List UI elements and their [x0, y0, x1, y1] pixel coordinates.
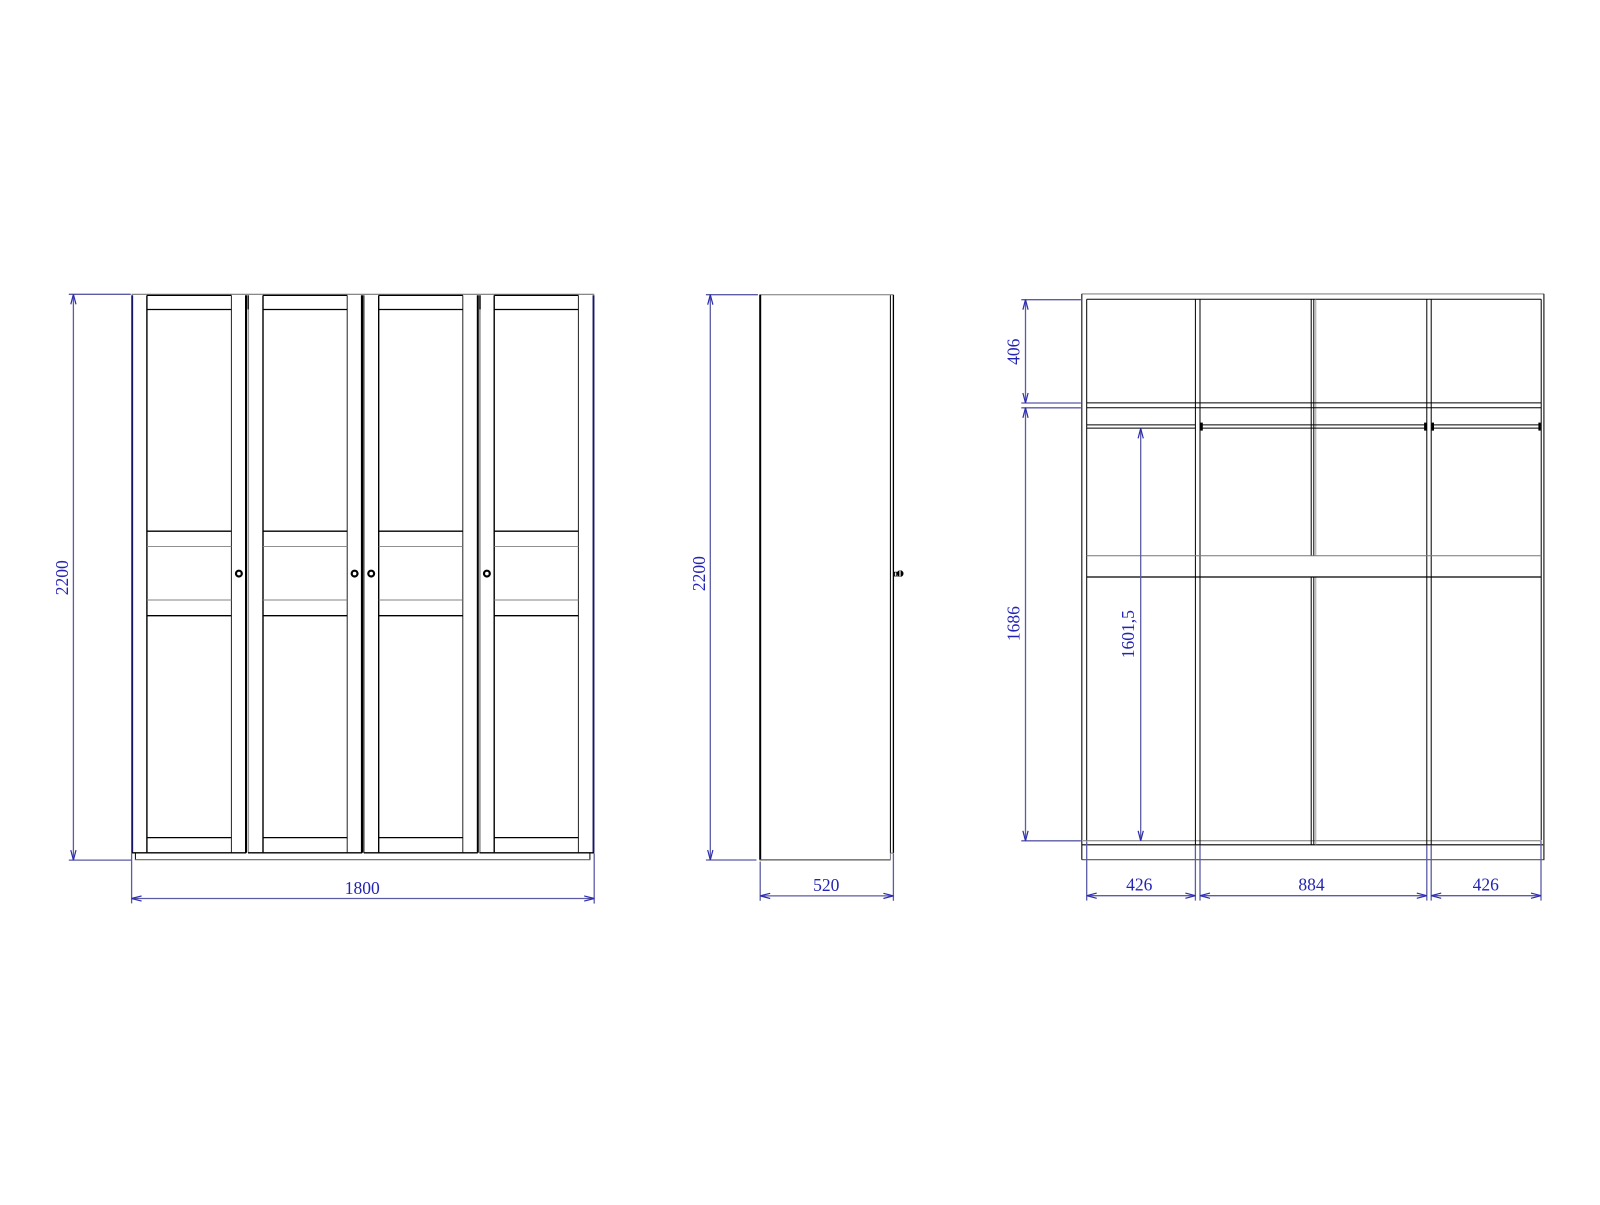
svg-text:2200: 2200 — [689, 556, 709, 591]
svg-text:406: 406 — [1003, 338, 1023, 365]
svg-text:426: 426 — [1473, 875, 1500, 895]
svg-text:884: 884 — [1298, 875, 1325, 895]
svg-text:1800: 1800 — [345, 878, 380, 898]
svg-text:520: 520 — [813, 875, 840, 895]
svg-text:426: 426 — [1126, 875, 1153, 895]
svg-text:2200: 2200 — [52, 560, 72, 595]
svg-text:1601,5: 1601,5 — [1118, 610, 1138, 658]
svg-text:1686: 1686 — [1003, 606, 1023, 641]
